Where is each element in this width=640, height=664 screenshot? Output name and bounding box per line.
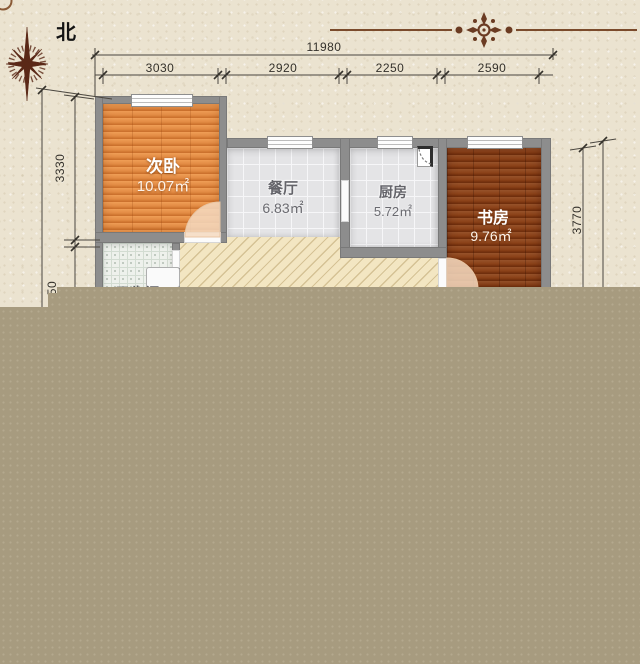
ornament-divider-icon — [330, 12, 637, 48]
bedroom-door-arc — [185, 202, 220, 237]
dimension-lines — [36, 48, 616, 307]
kitchen-appliance-swing-line — [419, 149, 431, 164]
corner-circle-icon — [0, 0, 12, 10]
door-arcs — [185, 202, 478, 289]
study-door-arc — [447, 258, 478, 289]
dimension-ticks — [38, 51, 607, 251]
floor-plan-canvas: 次卧 10.07㎡ 餐厅 6.83㎡ 厨房 5.72㎡ 书房 9.76㎡ 卫生间… — [0, 0, 640, 664]
